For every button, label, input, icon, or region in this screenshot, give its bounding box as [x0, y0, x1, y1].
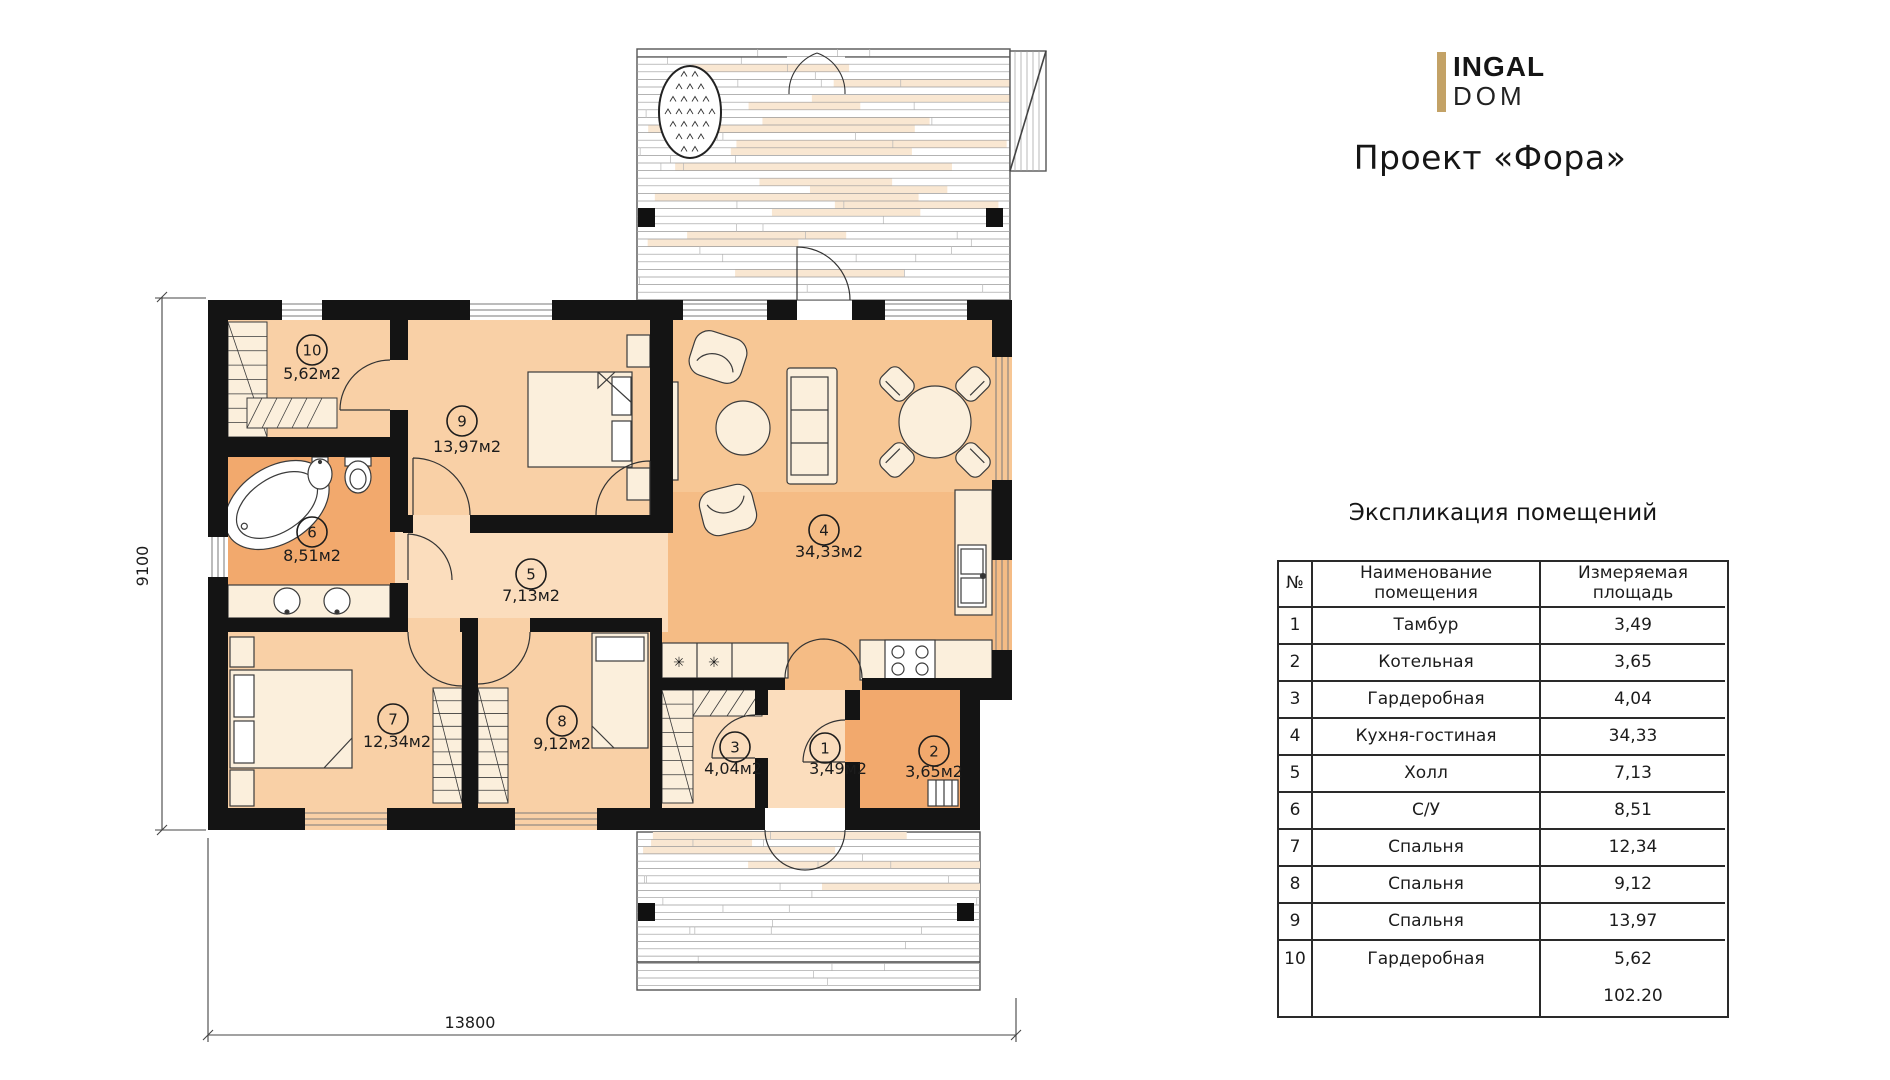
room-number: 10 [302, 342, 321, 360]
deck-plank [772, 209, 920, 217]
svg-text:✳: ✳ [708, 655, 720, 671]
legend-cell-name: Котельная [1313, 645, 1541, 682]
legend-total-num [1279, 978, 1313, 1016]
wall [387, 808, 515, 830]
brand-logo: INGAL DOM [1437, 52, 1545, 112]
legend-cell-num: 10 [1279, 941, 1313, 978]
legend-cell-num: 6 [1279, 793, 1313, 830]
wall [390, 320, 408, 360]
wall [992, 300, 1012, 357]
legend-cell-area: 4,04 [1541, 682, 1725, 719]
legend-row: 3Гардеробная4,04 [1279, 682, 1727, 719]
terrace-column [986, 208, 1003, 227]
legend-cell-num: 3 [1279, 682, 1313, 719]
wall [462, 632, 478, 808]
legend-cell-name: Гардеробная [1313, 682, 1541, 719]
dining-table [899, 386, 971, 458]
legend-cell-num: 5 [1279, 756, 1313, 793]
legend-row: 7Спальня12,34 [1279, 830, 1727, 867]
room-number: 4 [819, 522, 829, 540]
deck-plank [749, 102, 861, 110]
wall [845, 808, 980, 830]
legend-cell-num: 2 [1279, 645, 1313, 682]
deck-plank [735, 269, 904, 277]
kitchen-sink [958, 545, 986, 607]
legend-cell-name: Кухня-гостиная [1313, 719, 1541, 756]
bed [230, 670, 352, 768]
logo-text-dom: DOM [1453, 82, 1545, 110]
svg-text:✳: ✳ [673, 655, 685, 671]
dimension-label-left: 9100 [133, 546, 152, 587]
nightstand [627, 468, 650, 500]
wall [390, 583, 408, 618]
wall [460, 618, 478, 632]
room-area: 3,49м2 [809, 759, 867, 778]
room-area: 3,65м2 [905, 762, 963, 781]
legend-cell-name: Тамбур [1313, 608, 1541, 645]
room-area: 8,51м2 [283, 546, 341, 565]
room-area: 12,34м2 [363, 732, 431, 751]
room-area: 7,13м2 [502, 586, 560, 605]
legend-cell-area: 13,97 [1541, 904, 1725, 941]
legend-row: 9Спальня13,97 [1279, 904, 1727, 941]
legend-cell-area: 9,12 [1541, 867, 1725, 904]
room-fill-tambour-1 [755, 690, 860, 808]
coffee-table [716, 401, 770, 455]
terrace-deck-planks [637, 832, 980, 990]
legend-row: 5Холл7,13 [1279, 756, 1727, 793]
legend-cell-area: 3,49 [1541, 608, 1725, 645]
legend-row: 8Спальня9,12 [1279, 867, 1727, 904]
wall [862, 678, 960, 690]
deck-plank [812, 95, 1010, 103]
legend-cell-area: 5,62 [1541, 941, 1725, 978]
terrace-column [957, 903, 974, 921]
legend-cell-name: Спальня [1313, 904, 1541, 941]
wall [208, 618, 408, 632]
terrace-top [637, 49, 1046, 300]
room-number: 1 [820, 740, 830, 758]
room-area: 9,12м2 [533, 734, 591, 753]
legend-row: 2Котельная3,65 [1279, 645, 1727, 682]
deck-plank [648, 239, 799, 247]
legend-total-row: 102.20 [1279, 978, 1727, 1016]
room-number: 7 [388, 711, 398, 729]
stove [885, 640, 935, 680]
wall [552, 300, 683, 320]
deck-plank [651, 839, 752, 846]
legend-cell-name: Холл [1313, 756, 1541, 793]
terrace-column [638, 903, 655, 921]
closet-outline [693, 690, 762, 716]
legend-cell-num: 4 [1279, 719, 1313, 756]
vanity-sinks [228, 585, 390, 618]
deck-plank [748, 861, 980, 868]
legend-cell-area: 34,33 [1541, 719, 1725, 756]
wall [992, 480, 1012, 560]
deck-plank [759, 178, 892, 186]
legend-header-name: Наименование помещения [1313, 562, 1541, 608]
deck-plank [687, 231, 846, 239]
legend-cell-area: 12,34 [1541, 830, 1725, 867]
wall [530, 618, 662, 632]
logo-accent-bar [1437, 52, 1446, 112]
legend-cell-num: 8 [1279, 867, 1313, 904]
terrace-outline [637, 832, 980, 990]
wall [650, 320, 673, 515]
room-number: 6 [307, 524, 317, 542]
terrace-column [638, 208, 655, 227]
legend-header-num: № [1279, 562, 1313, 608]
legend-row: 4Кухня-гостиная34,33 [1279, 719, 1727, 756]
bed [592, 633, 648, 748]
deck-plank [653, 832, 907, 839]
legend-table: № Наименование помещения Измеряемая площ… [1277, 560, 1729, 1018]
deck-plank [675, 163, 952, 171]
deck-plank [731, 148, 912, 156]
legend-total-area: 102.20 [1541, 978, 1725, 1016]
wall [845, 690, 860, 720]
wall [597, 808, 765, 830]
boiler [928, 780, 958, 806]
toilet [345, 457, 371, 493]
legend-cell-area: 8,51 [1541, 793, 1725, 830]
spa-planter [659, 66, 721, 158]
terrace-bottom [637, 832, 980, 990]
room-number: 8 [557, 713, 567, 731]
legend-cell-name: Гардеробная [1313, 941, 1541, 978]
room-area: 13,97м2 [433, 437, 501, 456]
room-number: 3 [730, 739, 740, 757]
room-fill-boiler-2 [845, 690, 980, 808]
bidet [308, 457, 332, 489]
page: ✳ ✳ [0, 0, 1890, 1080]
legend-cell-num: 1 [1279, 608, 1313, 645]
terrace-step [1010, 51, 1046, 171]
wall [208, 300, 228, 537]
sofa [787, 368, 837, 484]
wall [852, 300, 885, 320]
legend-cell-area: 7,13 [1541, 756, 1725, 793]
deck-plank [655, 193, 919, 201]
legend-cell-name: Спальня [1313, 830, 1541, 867]
nightstand [627, 335, 650, 367]
legend-cell-num: 7 [1279, 830, 1313, 867]
room-area: 4,04м2 [704, 759, 762, 778]
legend-cell-name: Спальня [1313, 867, 1541, 904]
legend-title: Экспликация помещений [1277, 500, 1729, 526]
wall [208, 577, 228, 830]
deck-plank [736, 140, 1006, 148]
wall [650, 632, 662, 808]
wall [228, 437, 408, 457]
legend-cell-area: 3,65 [1541, 645, 1725, 682]
legend-total-name [1313, 978, 1541, 1016]
wall [650, 678, 785, 690]
legend-cell-num: 9 [1279, 904, 1313, 941]
room-number: 2 [929, 743, 939, 761]
wall [470, 515, 673, 533]
legend-cell-name: С/У [1313, 793, 1541, 830]
bed [528, 372, 632, 467]
legend-header-area: Измеряемая площадь [1541, 562, 1725, 608]
legend-row: 1Тамбур3,49 [1279, 608, 1727, 645]
kitchen-cabinets: ✳ ✳ [662, 643, 788, 678]
wall [755, 690, 768, 715]
deck-plank [834, 79, 1010, 87]
project-title: Проект «Фора» [1255, 138, 1725, 177]
room-area: 34,33м2 [795, 542, 863, 561]
room-area: 5,62м2 [283, 364, 341, 383]
room-number: 5 [526, 566, 536, 584]
legend-header-row: № Наименование помещения Измеряемая площ… [1279, 562, 1727, 608]
legend-row: 10Гардеробная5,62 [1279, 941, 1727, 978]
deck-plank [762, 117, 929, 125]
logo-text-ingal: INGAL [1453, 52, 1545, 82]
nightstand [230, 770, 254, 806]
deck-plank [835, 201, 999, 209]
legend-row: 6С/У8,51 [1279, 793, 1727, 830]
wall [403, 515, 413, 533]
nightstand [230, 637, 254, 667]
room-number: 9 [457, 413, 467, 431]
deck-plank [822, 883, 980, 890]
dimension-label-bottom: 13800 [445, 1013, 496, 1032]
deck-plank [810, 186, 947, 194]
closet-outline [247, 398, 337, 428]
deck-plank [692, 64, 850, 72]
wall [767, 300, 797, 320]
deck-plank [643, 847, 835, 854]
wall [322, 300, 470, 320]
wall [208, 808, 305, 830]
